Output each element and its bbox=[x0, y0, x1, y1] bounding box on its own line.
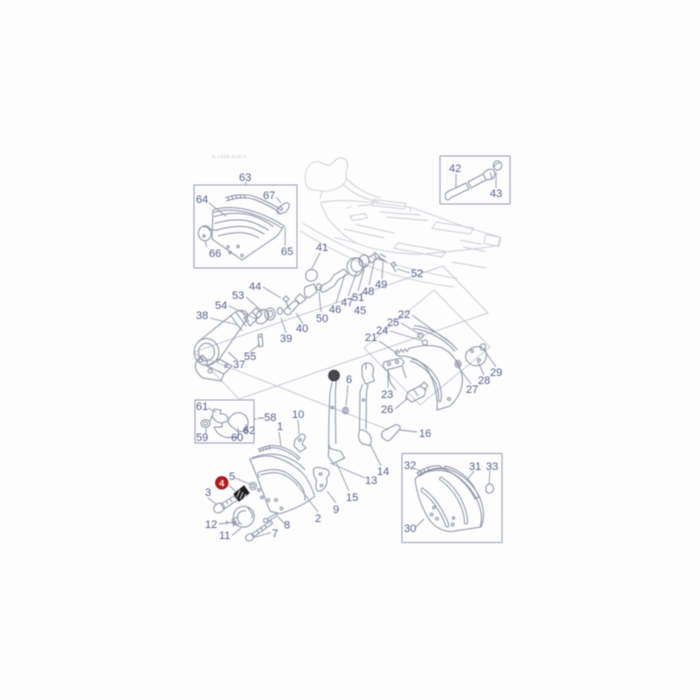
svg-text:50: 50 bbox=[316, 313, 328, 325]
svg-text:49: 49 bbox=[375, 279, 387, 291]
svg-text:23: 23 bbox=[381, 389, 393, 401]
svg-text:27: 27 bbox=[466, 384, 478, 396]
svg-text:47: 47 bbox=[341, 297, 353, 309]
svg-text:32: 32 bbox=[404, 460, 416, 472]
svg-text:4: 4 bbox=[219, 479, 225, 490]
svg-text:21: 21 bbox=[365, 332, 377, 344]
svg-text:14: 14 bbox=[377, 466, 389, 478]
svg-text:28: 28 bbox=[478, 375, 490, 387]
svg-text:13: 13 bbox=[365, 475, 377, 487]
svg-text:33: 33 bbox=[486, 461, 498, 473]
svg-text:S-1826-010-A: S-1826-010-A bbox=[212, 154, 247, 159]
svg-text:12: 12 bbox=[205, 519, 217, 531]
svg-text:10: 10 bbox=[292, 409, 304, 421]
svg-text:22: 22 bbox=[398, 309, 410, 321]
svg-text:65: 65 bbox=[281, 246, 293, 258]
svg-text:67: 67 bbox=[263, 190, 275, 202]
svg-text:5: 5 bbox=[229, 471, 235, 483]
svg-text:37: 37 bbox=[233, 359, 245, 371]
svg-text:8: 8 bbox=[284, 520, 290, 532]
svg-text:64: 64 bbox=[196, 194, 208, 206]
svg-text:53: 53 bbox=[232, 290, 244, 302]
svg-text:44: 44 bbox=[249, 281, 261, 293]
svg-text:45: 45 bbox=[354, 305, 366, 317]
svg-text:11: 11 bbox=[219, 530, 230, 542]
svg-text:24: 24 bbox=[376, 325, 388, 337]
svg-text:43: 43 bbox=[490, 188, 502, 200]
svg-text:41: 41 bbox=[316, 242, 328, 254]
svg-text:26: 26 bbox=[381, 404, 393, 416]
svg-text:54: 54 bbox=[215, 300, 227, 312]
svg-text:51: 51 bbox=[352, 292, 364, 304]
svg-text:42: 42 bbox=[449, 163, 461, 175]
svg-text:46: 46 bbox=[329, 304, 341, 316]
svg-text:29: 29 bbox=[490, 367, 502, 379]
svg-text:15: 15 bbox=[346, 492, 358, 504]
svg-text:40: 40 bbox=[296, 323, 308, 335]
svg-text:66: 66 bbox=[209, 248, 221, 260]
svg-text:52: 52 bbox=[411, 268, 423, 280]
svg-text:38: 38 bbox=[196, 310, 208, 322]
svg-text:60: 60 bbox=[231, 432, 243, 444]
svg-text:62: 62 bbox=[243, 425, 255, 437]
svg-text:25: 25 bbox=[387, 317, 399, 329]
svg-text:2: 2 bbox=[315, 513, 321, 525]
svg-text:7: 7 bbox=[272, 528, 278, 540]
svg-text:16: 16 bbox=[419, 428, 431, 440]
svg-text:9: 9 bbox=[333, 504, 339, 516]
svg-text:–58: –58 bbox=[258, 412, 276, 424]
svg-text:31: 31 bbox=[469, 461, 481, 473]
svg-text:30: 30 bbox=[404, 523, 416, 535]
svg-text:39: 39 bbox=[280, 333, 292, 345]
svg-text:61: 61 bbox=[196, 401, 208, 413]
svg-text:55: 55 bbox=[244, 351, 256, 363]
svg-text:1: 1 bbox=[277, 421, 283, 433]
svg-text:6: 6 bbox=[346, 374, 352, 386]
svg-text:3: 3 bbox=[205, 487, 211, 499]
